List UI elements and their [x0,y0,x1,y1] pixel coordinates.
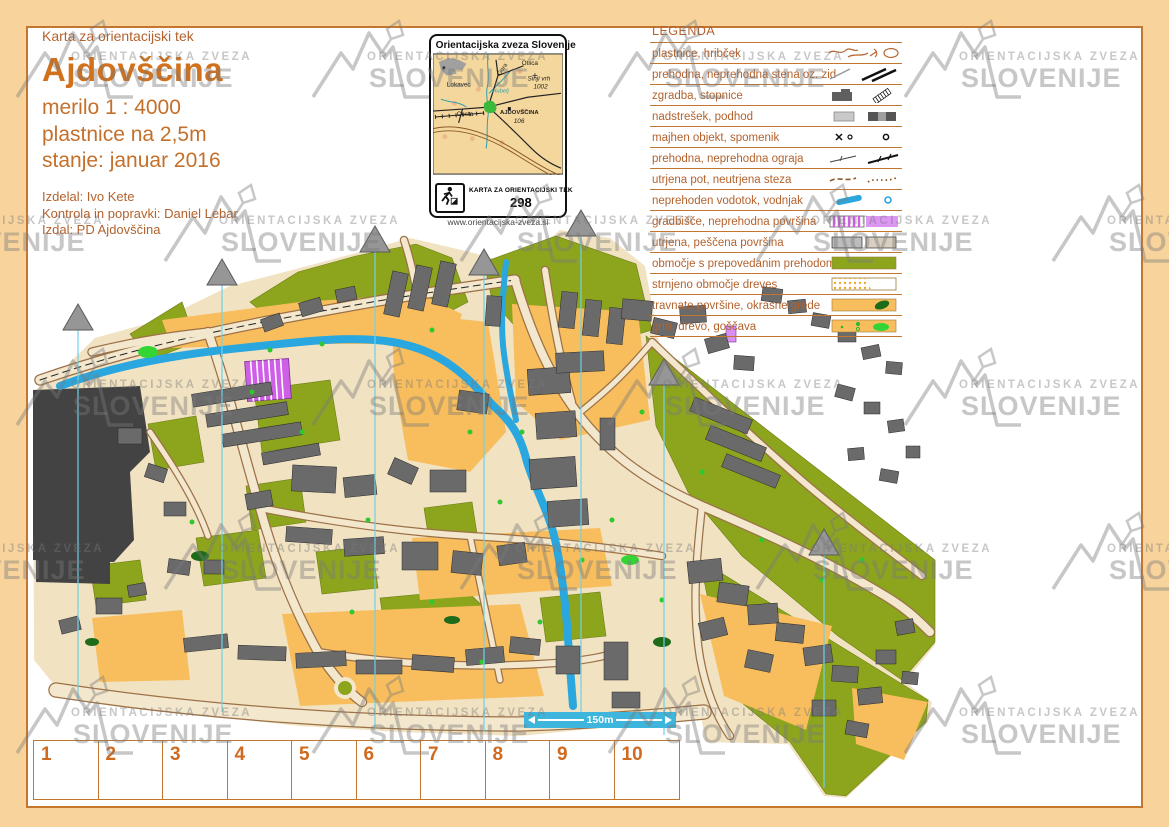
building [343,474,377,497]
ruler-cell: 10 [614,740,680,800]
tree-icon [430,600,435,605]
building [485,296,502,327]
credit-line: Izdelal: Ivo Kete [42,189,238,206]
legend-item: majhen objekt, spomenik [650,127,902,148]
bush-tree-icon [828,318,902,334]
title-block: Karta za orientacijski tek Ajdovščina me… [42,28,238,239]
fence-icon [828,150,902,166]
tree-icon [580,558,585,563]
legend-item-label: travnate površine, okrasne grede [652,300,820,312]
legend-item-label: neprehoden vodotok, vodnjak [652,195,803,207]
dense-trees-icon [828,276,902,292]
building [286,526,333,544]
tree-icon [700,470,705,475]
contour-interval-text: plastnice na 2,5m [42,122,238,149]
inset-label-town: AJDOVŠČINA [500,108,539,116]
object-monument-icon [828,129,902,145]
building [901,671,918,685]
building [582,299,602,336]
building [687,558,723,583]
grass-beds-icon [828,297,902,313]
legend-item-label: območje s prepovedanim prehodom [652,258,835,270]
inset-label-1002: 1002 [533,83,548,90]
building [803,644,833,666]
building [451,550,483,575]
legend-item: prehodna, neprehodna ograja [650,148,902,169]
tree-icon [610,518,615,523]
building [717,582,749,606]
building [402,542,438,570]
legend-item: zgradba, stopnice [650,85,902,106]
building [879,469,899,484]
legend-item: gradbišče, neprehodna površina [650,211,902,232]
legend-item-label: utrjena, peščena površina [652,237,784,249]
building [886,361,903,374]
building [556,646,580,674]
building [831,665,858,683]
legend-item-label: prehodna, neprehodna ograja [652,153,804,165]
ruler-number: 4 [235,744,292,766]
building [734,355,755,370]
ruler-number: 8 [493,744,550,766]
flower-bed [191,551,209,561]
building [291,465,336,493]
flower-bed [653,637,671,647]
scale-line [616,719,662,721]
legend-item-label: plastnice, hribček [652,48,741,60]
ruler-number: 5 [299,744,356,766]
building [621,299,653,322]
building-stairs-icon [828,87,902,103]
legend-item: območje s prepovedanim prehodom [650,253,902,274]
inset-label-lokavec: Lokavec [447,81,472,88]
tree-icon [190,520,195,525]
tree-icon [350,610,355,615]
building [906,446,920,458]
building [835,384,856,401]
legend-item-label: majhen objekt, spomenik [652,132,779,144]
building [529,456,577,489]
building [204,560,224,574]
building [857,687,883,705]
legend-item: travnate površine, okrasne grede [650,295,902,316]
north-arrow-icon [566,210,596,236]
legend-item: strnjeno območje dreves [650,274,902,295]
inset-header: Orientacijska zveza Slovenije [436,39,561,51]
orienteering-runner-icon [435,183,465,213]
water-well-icon [828,192,902,208]
legend: LEGENDA plastnice, hribčekprehodna, nepr… [650,24,902,337]
legend-item-label: prehodna, neprehodna stena oz. zid [652,69,836,81]
scale-bar-label: 150m [587,714,614,726]
inset-footer-text: KARTA ZA ORIENTACIJSKI TEK 298 [469,187,573,210]
legend-item-label: gradbišče, neprehodna površina [652,216,816,228]
canopy-underpass-icon [828,108,902,124]
tree-icon [268,348,273,353]
ruler-number: 7 [428,744,485,766]
ruler-cell: 6 [356,740,422,800]
inset-footer-label: KARTA ZA ORIENTACIJSKI TEK [469,187,573,194]
tree-icon [250,390,255,395]
legend-item: grm, drevo, goščava [650,316,902,337]
building [775,623,805,644]
building [612,692,640,708]
tree-icon [640,410,645,415]
map-status-text: stanje: januar 2016 [42,148,238,175]
ruler-cell: 5 [291,740,357,800]
building [556,351,605,373]
tree-icon [320,342,325,347]
ruler-cell: 9 [549,740,615,800]
ruler-number: 6 [364,744,421,766]
inset-label-otlica: Otlica [522,60,539,67]
legend-item: prehodna, neprehodna stena oz. zid [650,64,902,85]
credit-line: Kontrola in popravki: Daniel Lebar [42,206,238,223]
legend-item-label: grm, drevo, goščava [652,321,756,333]
building [887,419,905,433]
tree-icon [860,558,865,563]
building [604,642,628,680]
roundabout [336,679,354,697]
building [167,559,191,576]
flower-bed [444,616,460,624]
legend-item-label: nadstrešek, podhod [652,111,753,123]
construction-icon [828,213,902,229]
building [600,418,615,450]
north-arrow-icon [207,259,237,285]
paved-sand-icon [828,234,902,250]
path-icon [828,171,902,187]
ruler-number: 9 [557,744,614,766]
building [547,499,589,528]
scale-arrow-left-icon [528,716,535,724]
building [535,411,577,440]
building [356,660,402,674]
building [895,619,915,636]
ruler-cell: 7 [420,740,486,800]
building [497,542,528,566]
building [430,470,466,492]
building [118,428,142,444]
ruler-number: 2 [106,744,163,766]
inset-card: Orientacijska zveza Slovenije [429,34,567,218]
tree-icon [538,620,543,625]
building [558,291,578,328]
scale-line [538,719,584,721]
credits-block: Izdelal: Ivo Kete Kontrola in popravki: … [42,189,238,239]
inset-label-hubelj: Hubelj [492,88,509,94]
building [861,344,881,359]
tree-icon [430,328,435,333]
inset-label-106: 106 [514,118,525,125]
building [509,636,541,655]
ruler-number: 3 [170,744,227,766]
building [164,502,186,516]
overview-map: Otlica Gora Lokavec Sinji vrh 1002 Hubel… [433,53,563,175]
legend-item: utrjena, peščena površina [650,232,902,253]
legend-title: LEGENDA [652,24,902,38]
forbidden-area-icon [828,255,902,271]
tree-icon [498,500,503,505]
inset-footer: KARTA ZA ORIENTACIJSKI TEK 298 [433,183,563,213]
legend-item-label: utrjena pot, neutrjena steza [652,174,791,186]
map-sheet: Karta za orientacijski tek Ajdovščina me… [0,0,1169,827]
map-number: 298 [469,195,573,210]
ruler-number: 1 [41,744,98,766]
north-arrow-icon [63,304,93,330]
ruler-cell: 1 [33,740,99,800]
building [96,598,122,614]
flower-bed [85,638,99,646]
tree-icon [300,430,305,435]
legend-item-label: zgradba, stopnice [652,90,743,102]
legend-item: neprehoden vodotok, vodnjak [650,190,902,211]
building [747,603,778,625]
punch-card-ruler: 12345678910 [33,740,680,800]
map-scale-text: merilo 1 : 4000 [42,95,238,122]
ruler-number: 10 [622,744,679,766]
wall-icon [828,66,902,82]
building [848,447,865,460]
building [876,650,896,664]
scale-arrow-right-icon [665,716,672,724]
scale-bar: 150m [524,712,676,728]
tree-icon [468,430,473,435]
website-text: www.orientacijska-zveza.si [429,217,567,227]
ruler-cell: 8 [485,740,551,800]
legend-rows: plastnice, hribčekprehodna, neprehodna s… [650,42,902,337]
ruler-cell: 4 [227,740,293,800]
north-arrow-icon [360,226,390,252]
thicket [621,555,639,565]
legend-item-label: strnjeno območje dreves [652,279,777,291]
legend-item: utrjena pot, neutrjena steza [650,169,902,190]
ruler-cell: 2 [98,740,164,800]
building [465,646,504,665]
building [412,655,455,673]
building [864,402,880,414]
building [238,645,286,661]
tree-icon [520,430,525,435]
credit-line: Izdal: PD Ajdovščina [42,222,238,239]
legend-item: plastnice, hribček [650,42,902,64]
thicket [138,346,158,358]
inset-label-sinji-vrh: Sinji vrh [528,76,551,83]
inset-label-cesta: Cesta [457,111,474,118]
map-kicker: Karta za orientacijski tek [42,28,238,44]
legend-item: nadstrešek, podhod [650,106,902,127]
ruler-cell: 3 [162,740,228,800]
building [296,651,347,669]
tree-icon [760,538,765,543]
building [343,537,384,557]
tree-icon [366,518,371,523]
page-title: Ajdovščina [42,51,238,89]
contours-knoll-icon [828,45,902,61]
